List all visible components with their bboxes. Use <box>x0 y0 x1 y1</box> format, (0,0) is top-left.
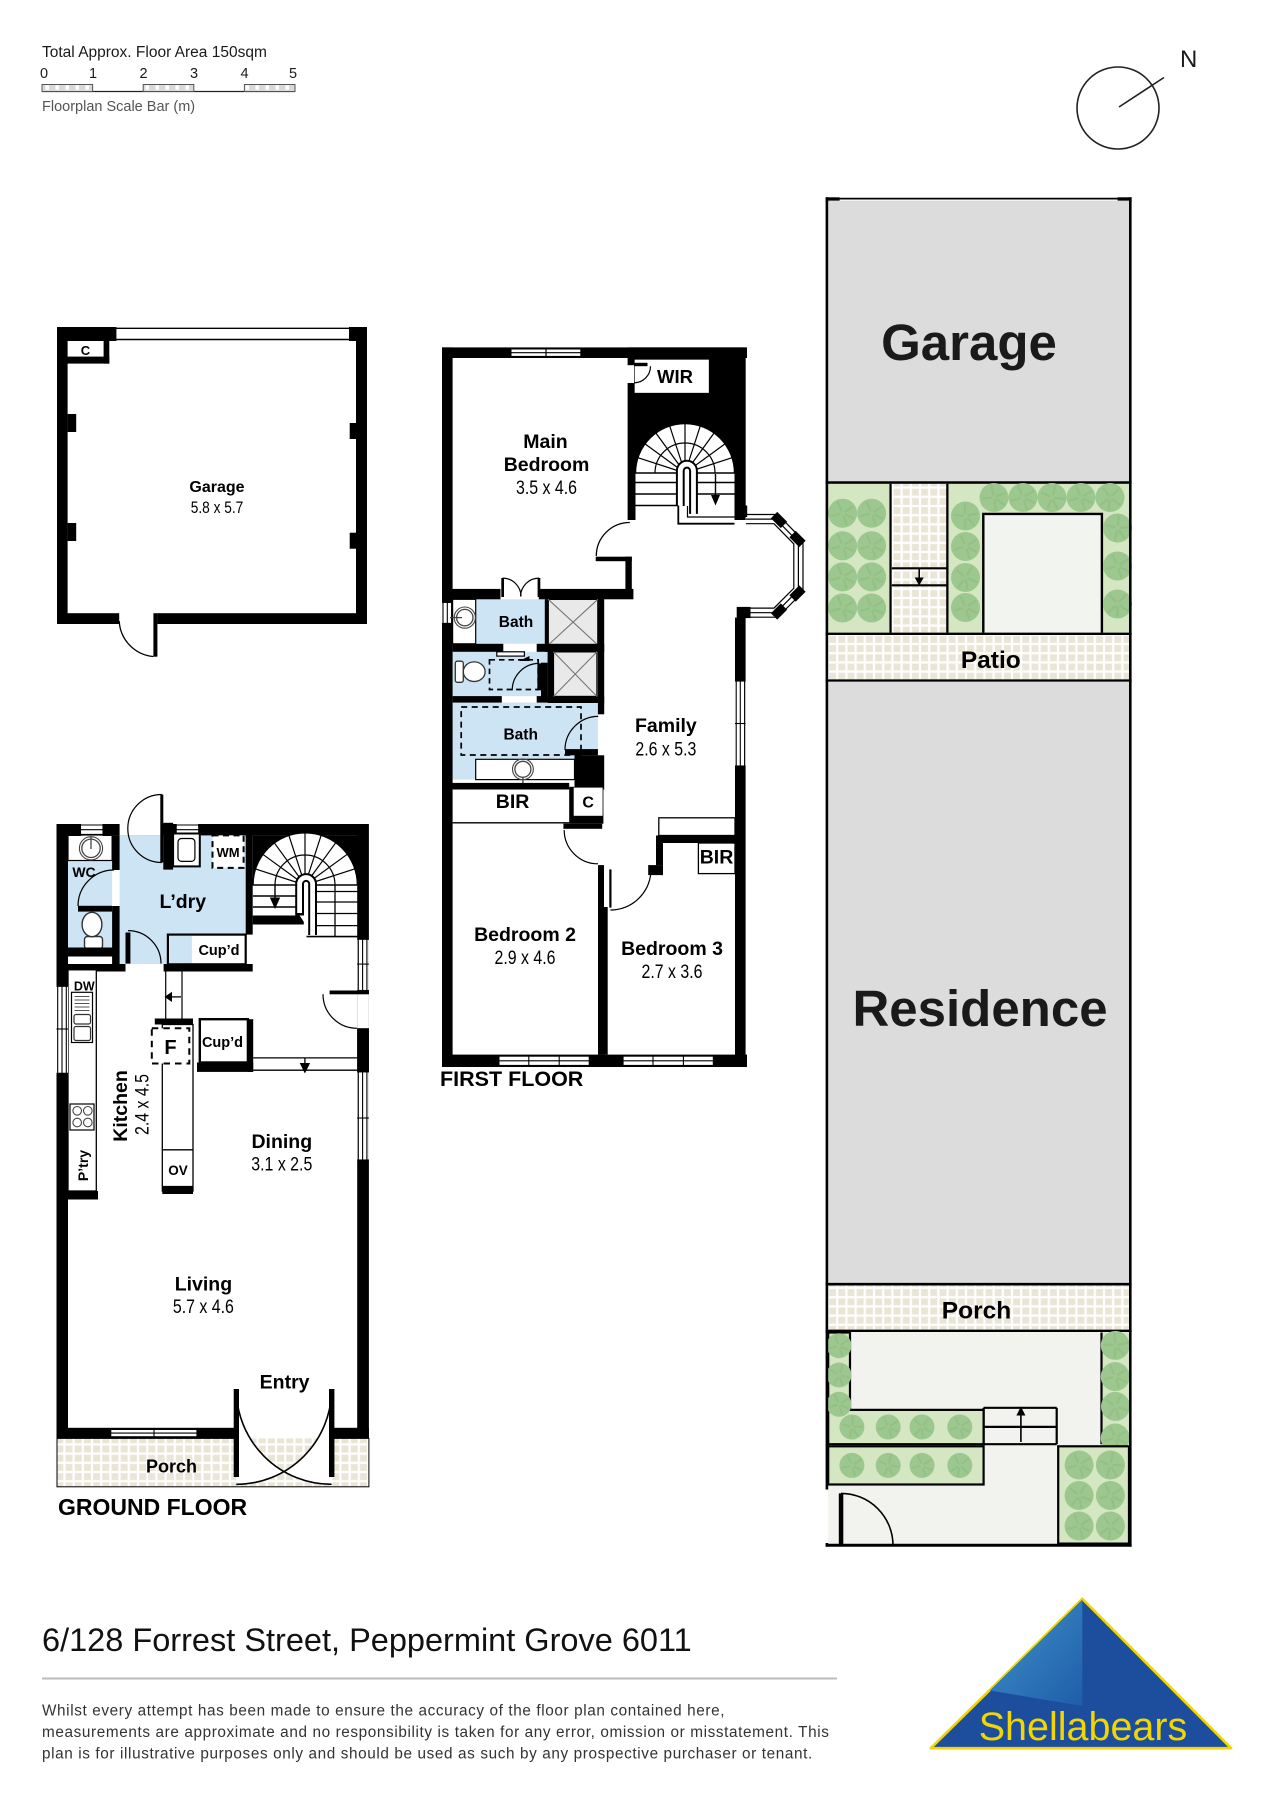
svg-text:C: C <box>582 795 594 812</box>
svg-text:F: F <box>164 1037 176 1059</box>
svg-text:2: 2 <box>139 66 147 82</box>
svg-text:2.9 x 4.6: 2.9 x 4.6 <box>495 948 556 969</box>
svg-text:Bedroom 2: Bedroom 2 <box>474 924 576 946</box>
svg-text:Family: Family <box>635 715 697 737</box>
svg-text:3.1 x 2.5: 3.1 x 2.5 <box>251 1155 312 1176</box>
svg-text:OV: OV <box>168 1163 188 1178</box>
svg-text:1: 1 <box>89 66 97 82</box>
svg-text:6/128 Forrest Street, Peppermi: 6/128 Forrest Street, Peppermint Grove 6… <box>42 1622 692 1658</box>
svg-text:3: 3 <box>190 66 198 82</box>
svg-text:L’dry: L’dry <box>159 891 206 913</box>
svg-text:Patio: Patio <box>961 647 1021 674</box>
svg-text:C: C <box>81 343 91 358</box>
svg-text:measurements are approximate a: measurements are approximate and no resp… <box>42 1724 830 1741</box>
svg-text:Dining: Dining <box>251 1131 312 1153</box>
svg-text:Porch: Porch <box>146 1457 197 1477</box>
svg-text:Residence: Residence <box>852 980 1107 1037</box>
svg-text:Kitchen: Kitchen <box>110 1070 132 1142</box>
svg-text:Cup’d: Cup’d <box>202 1035 243 1051</box>
svg-text:Bath: Bath <box>499 614 533 631</box>
svg-text:P’try: P’try <box>75 1150 91 1181</box>
svg-text:5: 5 <box>289 66 297 82</box>
svg-text:Whilst every attempt has been: Whilst every attempt has been made to en… <box>42 1703 725 1720</box>
svg-text:Porch: Porch <box>942 1298 1011 1325</box>
svg-text:Total Approx. Floor Area 150sq: Total Approx. Floor Area 150sqm <box>42 44 267 61</box>
svg-text:Cup’d: Cup’d <box>198 943 239 959</box>
svg-text:Entry: Entry <box>260 1372 310 1394</box>
svg-text:3.5 x 4.6: 3.5 x 4.6 <box>516 478 577 499</box>
svg-text:FIRST FLOOR: FIRST FLOOR <box>440 1067 584 1091</box>
svg-text:N: N <box>1180 46 1197 73</box>
svg-text:GROUND FLOOR: GROUND FLOOR <box>58 1494 247 1520</box>
svg-text:WIR: WIR <box>657 366 693 387</box>
svg-text:4: 4 <box>240 66 248 82</box>
svg-text:BIR: BIR <box>496 791 530 813</box>
svg-text:5.7 x 4.6: 5.7 x 4.6 <box>173 1297 234 1318</box>
svg-text:5.8 x 5.7: 5.8 x 5.7 <box>191 499 244 517</box>
svg-text:0: 0 <box>40 66 48 82</box>
svg-text:Bedroom 3: Bedroom 3 <box>621 938 723 960</box>
svg-text:2.6 x 5.3: 2.6 x 5.3 <box>635 740 696 761</box>
svg-text:WM: WM <box>216 845 239 860</box>
svg-text:DW: DW <box>74 980 95 994</box>
svg-text:Garage: Garage <box>189 479 244 496</box>
svg-text:Floorplan Scale Bar (m): Floorplan Scale Bar (m) <box>42 99 195 115</box>
svg-text:2.4 x 4.5: 2.4 x 4.5 <box>133 1074 154 1135</box>
svg-text:2.7 x 3.6: 2.7 x 3.6 <box>642 962 703 983</box>
svg-text:Shellabears: Shellabears <box>979 1705 1188 1749</box>
svg-text:Main: Main <box>523 431 567 453</box>
svg-text:Bath: Bath <box>503 727 537 744</box>
svg-text:BIR: BIR <box>700 847 734 869</box>
svg-text:Garage: Garage <box>881 314 1057 371</box>
svg-text:Living: Living <box>175 1274 232 1296</box>
svg-text:Bedroom: Bedroom <box>504 454 590 476</box>
svg-text:plan is for illustrative purpo: plan is for illustrative purposes only a… <box>42 1746 813 1763</box>
